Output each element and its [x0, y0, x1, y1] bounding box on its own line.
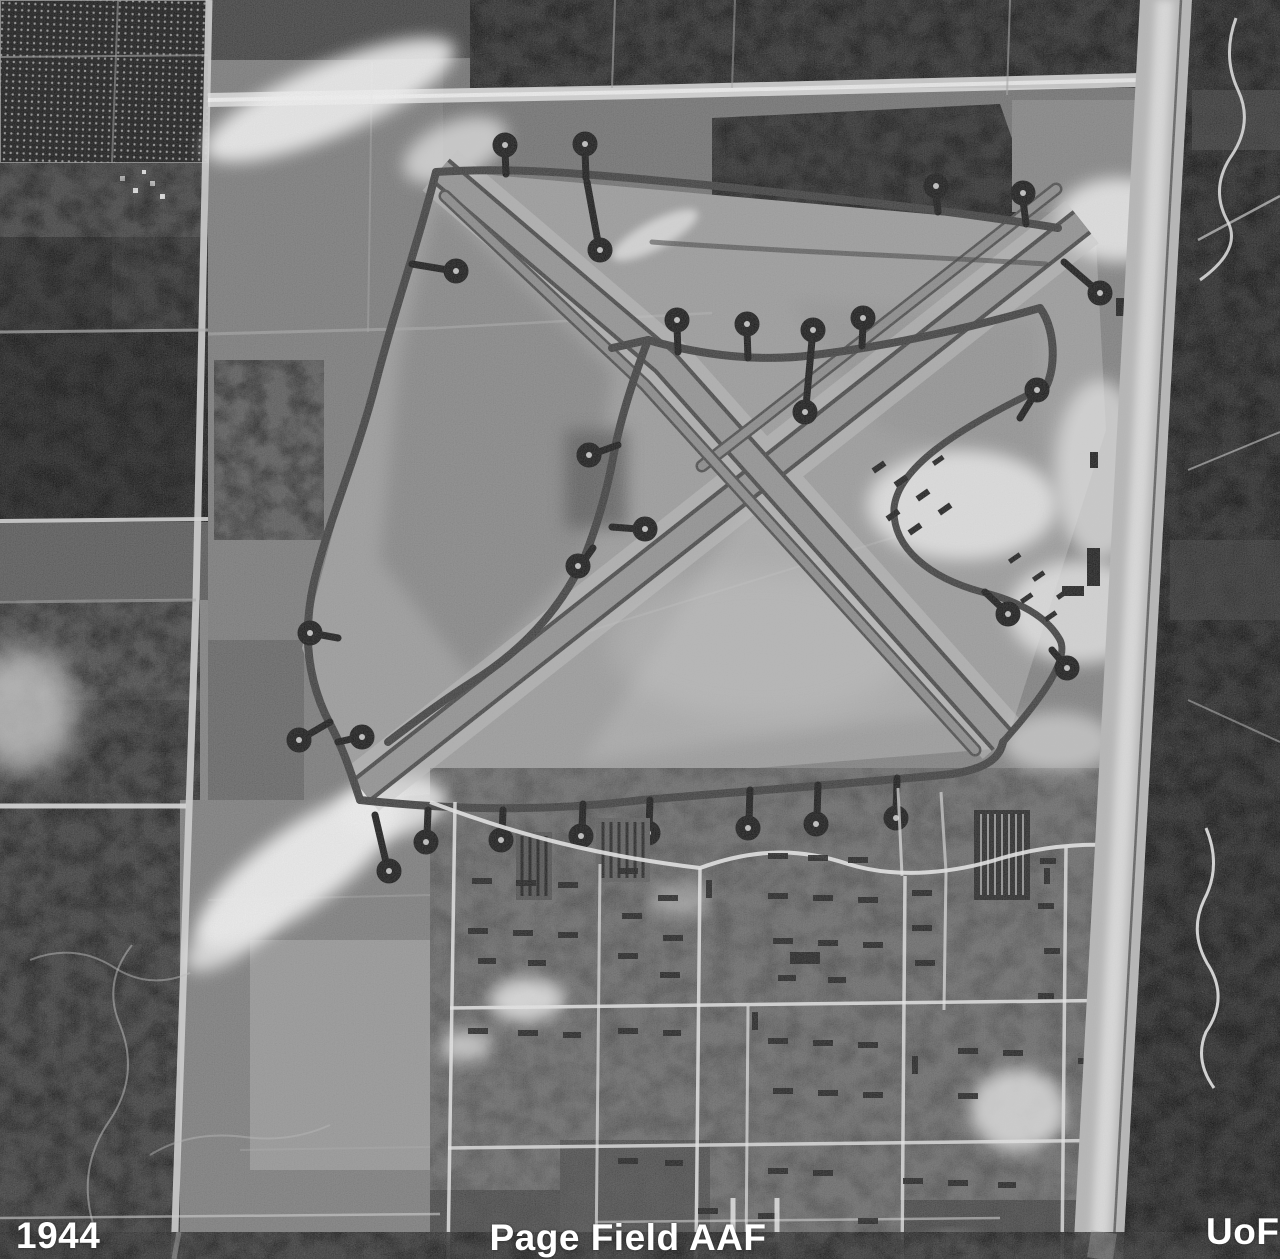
grain-overlay — [0, 0, 1280, 1259]
site-label: Page Field AAF — [489, 1219, 766, 1256]
aerial-photo-graphic — [0, 0, 1280, 1259]
aerial-photo: 1944 Page Field AAF UoFl — [0, 0, 1280, 1259]
credit-label: UoFl — [1206, 1213, 1280, 1250]
year-label: 1944 — [16, 1217, 100, 1254]
